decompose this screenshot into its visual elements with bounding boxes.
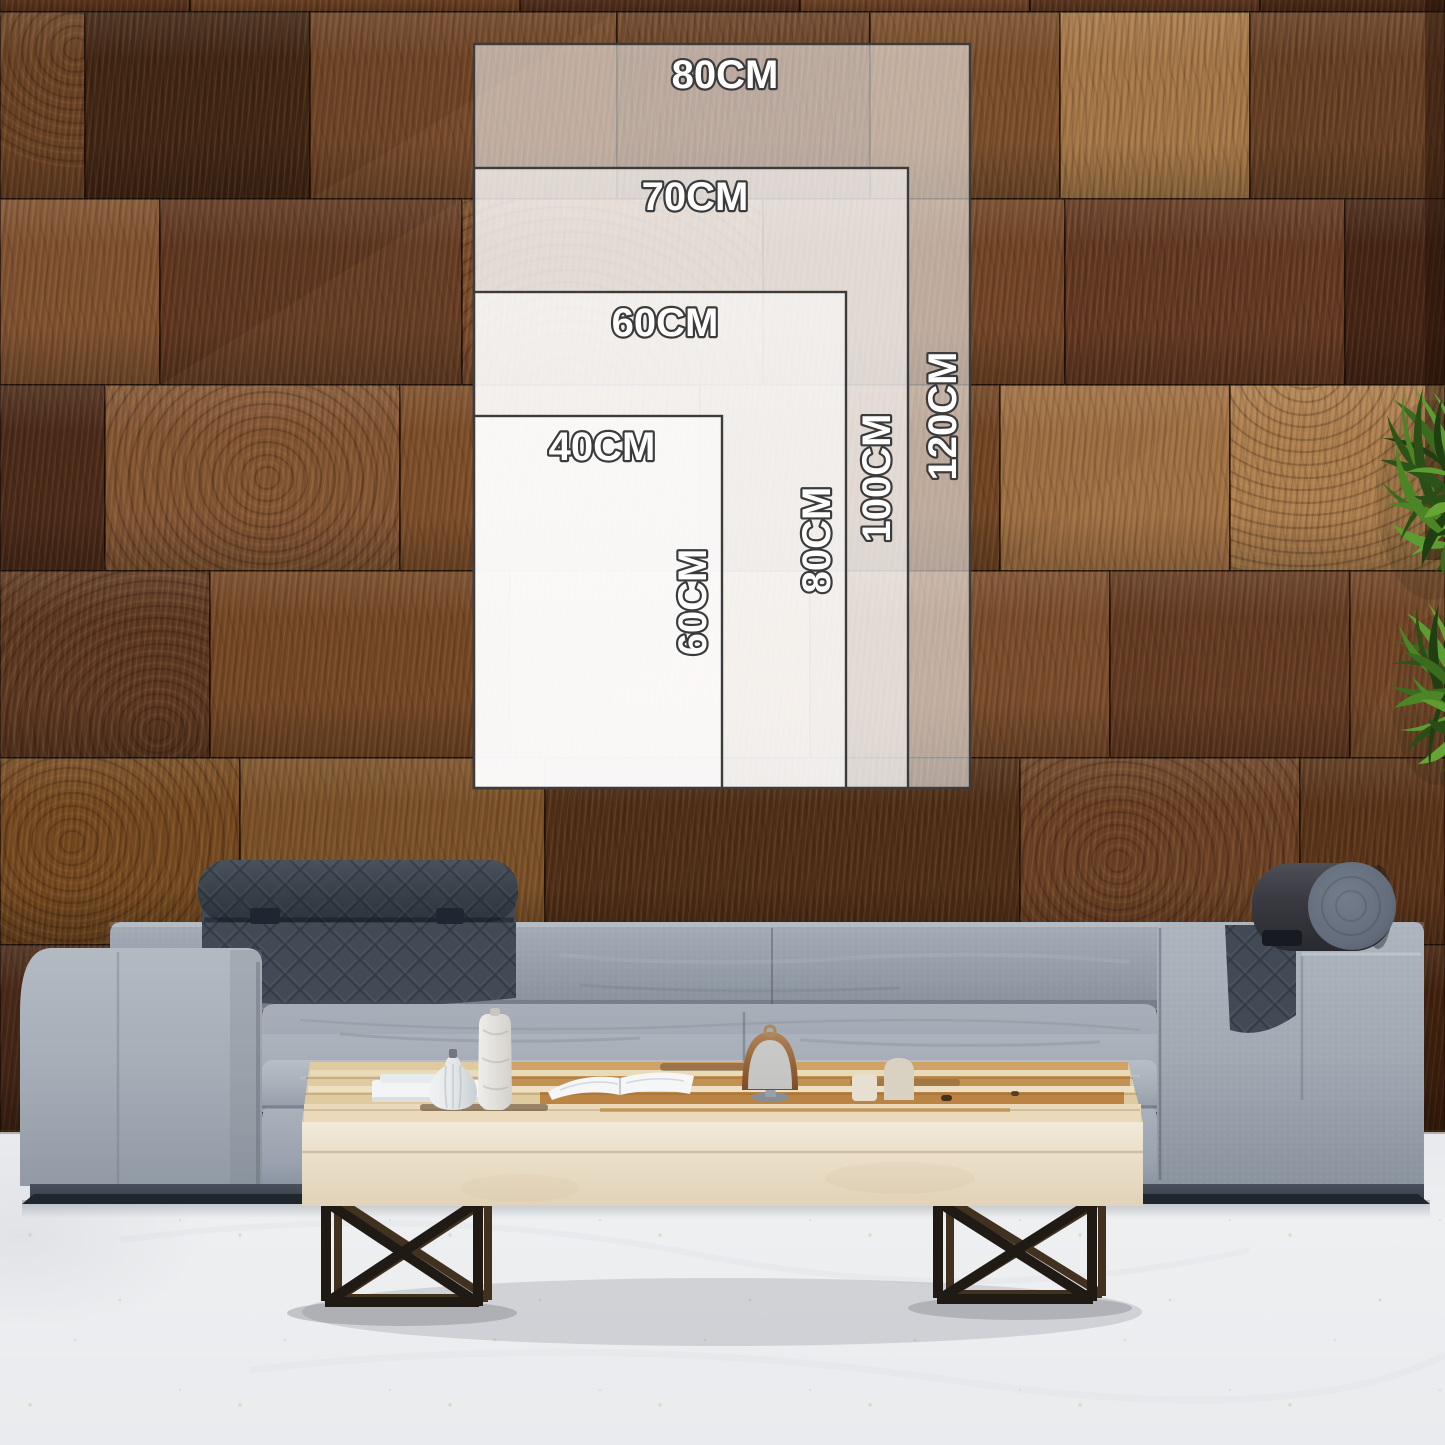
svg-text:60CM: 60CM bbox=[671, 549, 715, 656]
svg-text:100CM: 100CM bbox=[855, 414, 899, 543]
svg-text:120CM: 120CM bbox=[921, 352, 965, 481]
svg-text:80CM: 80CM bbox=[795, 487, 839, 594]
svg-text:70CM: 70CM bbox=[642, 175, 749, 219]
svg-text:60CM: 60CM bbox=[612, 301, 719, 345]
svg-text:40CM: 40CM bbox=[549, 425, 656, 469]
svg-text:80CM: 80CM bbox=[672, 53, 779, 97]
